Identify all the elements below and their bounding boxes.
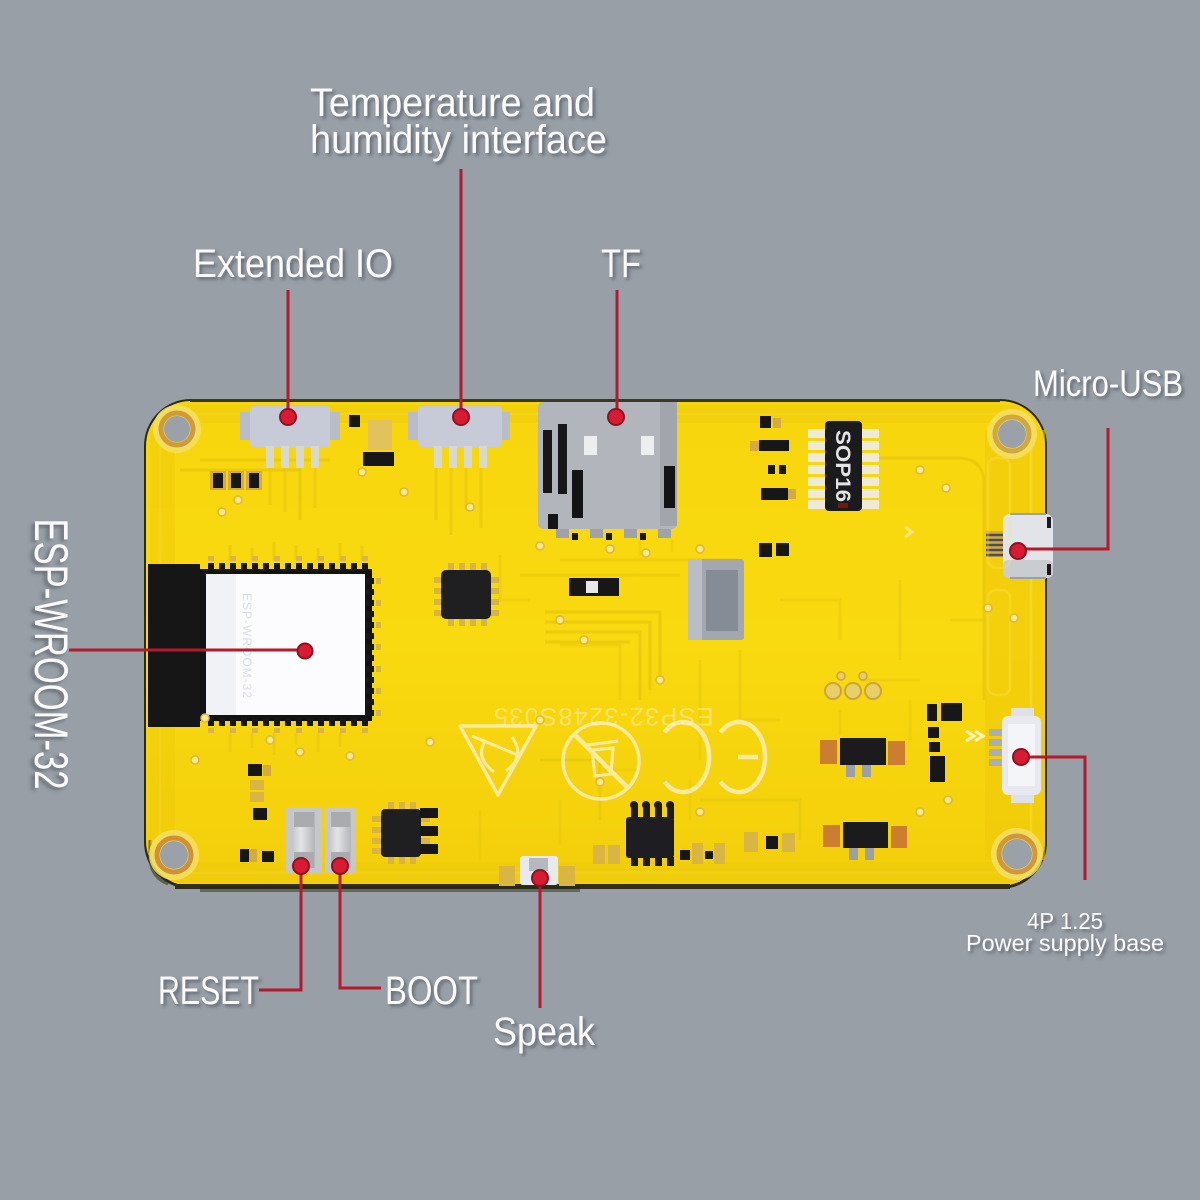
svg-text:Micro-USB: Micro-USB (1033, 363, 1183, 404)
svg-text:BOOT: BOOT (385, 969, 478, 1013)
svg-text:SOP16: SOP16 (831, 430, 854, 502)
svg-text:Power supply base: Power supply base (966, 930, 1164, 956)
svg-text:ESP-WROOM-32: ESP-WROOM-32 (24, 519, 76, 790)
svg-text:Speak: Speak (493, 1010, 596, 1054)
svg-text:RESET: RESET (158, 969, 259, 1013)
svg-text:ESP-WROOM-32: ESP-WROOM-32 (240, 593, 254, 699)
svg-text:TF: TF (601, 242, 641, 286)
svg-text:Extended IO: Extended IO (193, 242, 393, 286)
svg-text:humidity interface: humidity interface (310, 118, 607, 162)
